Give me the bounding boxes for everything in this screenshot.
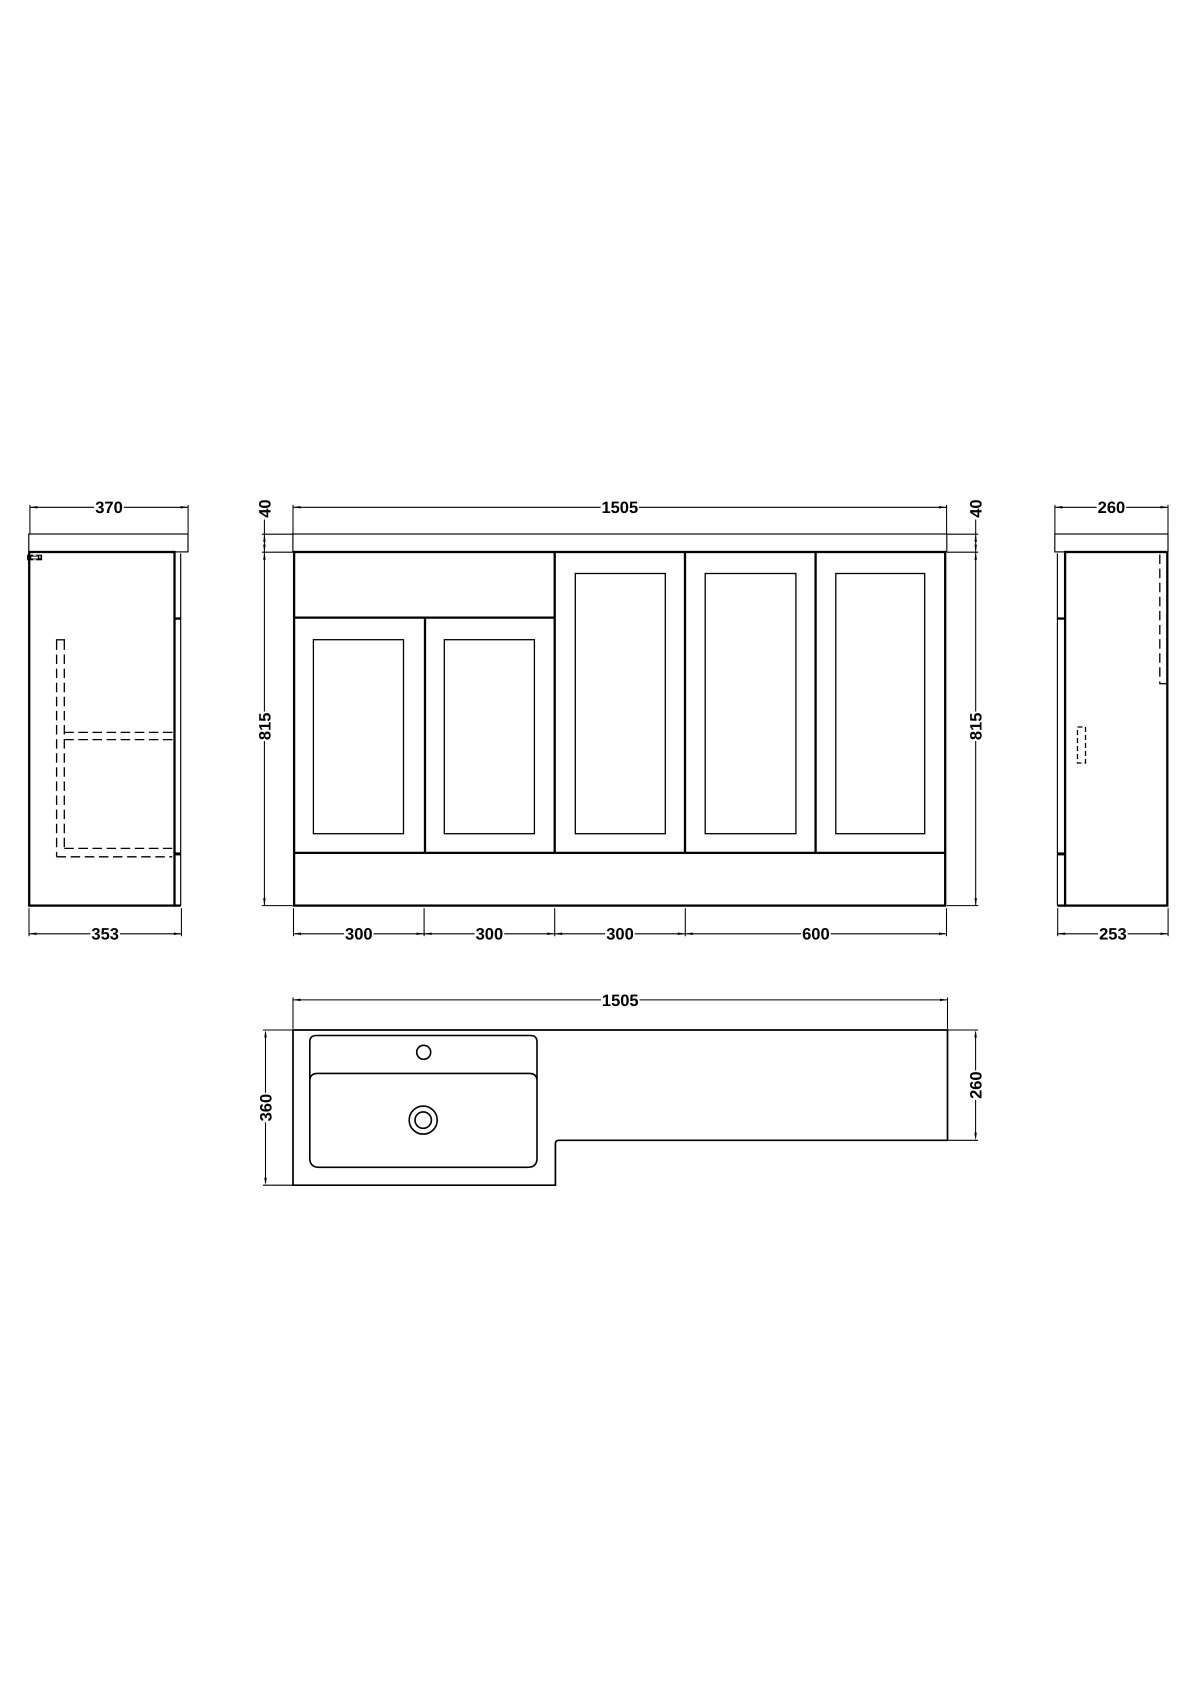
svg-text:300: 300 <box>476 926 504 944</box>
svg-text:1505: 1505 <box>601 499 638 517</box>
svg-text:360: 360 <box>257 1094 275 1122</box>
svg-text:300: 300 <box>606 926 634 944</box>
svg-text:815: 815 <box>256 713 274 741</box>
svg-text:815: 815 <box>968 713 986 741</box>
svg-text:253: 253 <box>1099 926 1127 944</box>
svg-text:40: 40 <box>256 499 274 517</box>
svg-text:300: 300 <box>345 926 373 944</box>
svg-text:1505: 1505 <box>602 992 639 1010</box>
svg-text:353: 353 <box>91 926 119 944</box>
svg-text:260: 260 <box>1098 499 1126 517</box>
svg-text:600: 600 <box>802 926 830 944</box>
svg-text:260: 260 <box>968 1071 986 1099</box>
svg-text:370: 370 <box>95 499 123 517</box>
svg-text:40: 40 <box>968 499 986 517</box>
